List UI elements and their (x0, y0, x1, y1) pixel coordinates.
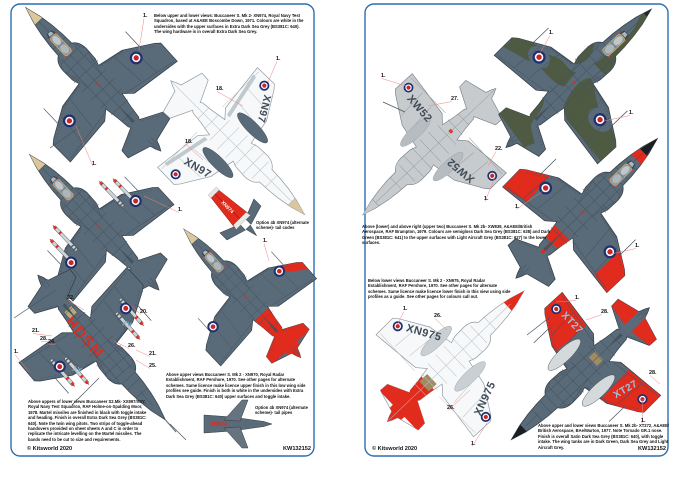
svg-text:1.: 1. (403, 306, 408, 312)
svg-text:27.: 27. (451, 96, 459, 102)
svg-text:1.: 1. (143, 13, 148, 19)
svg-text:1.: 1. (276, 56, 281, 62)
svg-text:20.: 20. (140, 309, 148, 315)
svg-text:22.: 22. (67, 295, 75, 301)
svg-text:26.: 26. (128, 343, 136, 349)
svg-text:21.: 21. (149, 351, 157, 357)
svg-text:28.: 28. (601, 309, 609, 315)
svg-text:XN974: XN974 (210, 422, 228, 428)
svg-text:28.: 28. (649, 370, 657, 376)
svg-text:1.: 1. (263, 238, 268, 244)
svg-text:1.: 1. (575, 295, 580, 301)
svg-text:26.: 26. (434, 313, 442, 319)
svg-text:1.: 1. (92, 161, 97, 167)
svg-text:18.: 18. (185, 139, 193, 145)
svg-text:1.: 1. (471, 441, 476, 447)
svg-text:21.: 21. (32, 328, 40, 334)
svg-text:1.: 1. (629, 110, 634, 116)
svg-text:26.: 26. (447, 405, 455, 411)
svg-text:24.: 24. (48, 339, 56, 345)
svg-text:1.: 1. (178, 207, 183, 213)
svg-text:22.: 22. (495, 146, 503, 152)
svg-text:1.: 1. (549, 30, 554, 36)
svg-text:1.: 1. (14, 349, 19, 355)
svg-text:1.: 1. (635, 243, 640, 249)
svg-text:18.: 18. (216, 86, 224, 92)
svg-text:25.: 25. (149, 363, 157, 369)
svg-text:1.: 1. (381, 73, 386, 79)
svg-text:28.: 28. (40, 336, 48, 342)
svg-text:1.: 1. (515, 204, 520, 210)
svg-text:1.: 1. (484, 196, 489, 202)
